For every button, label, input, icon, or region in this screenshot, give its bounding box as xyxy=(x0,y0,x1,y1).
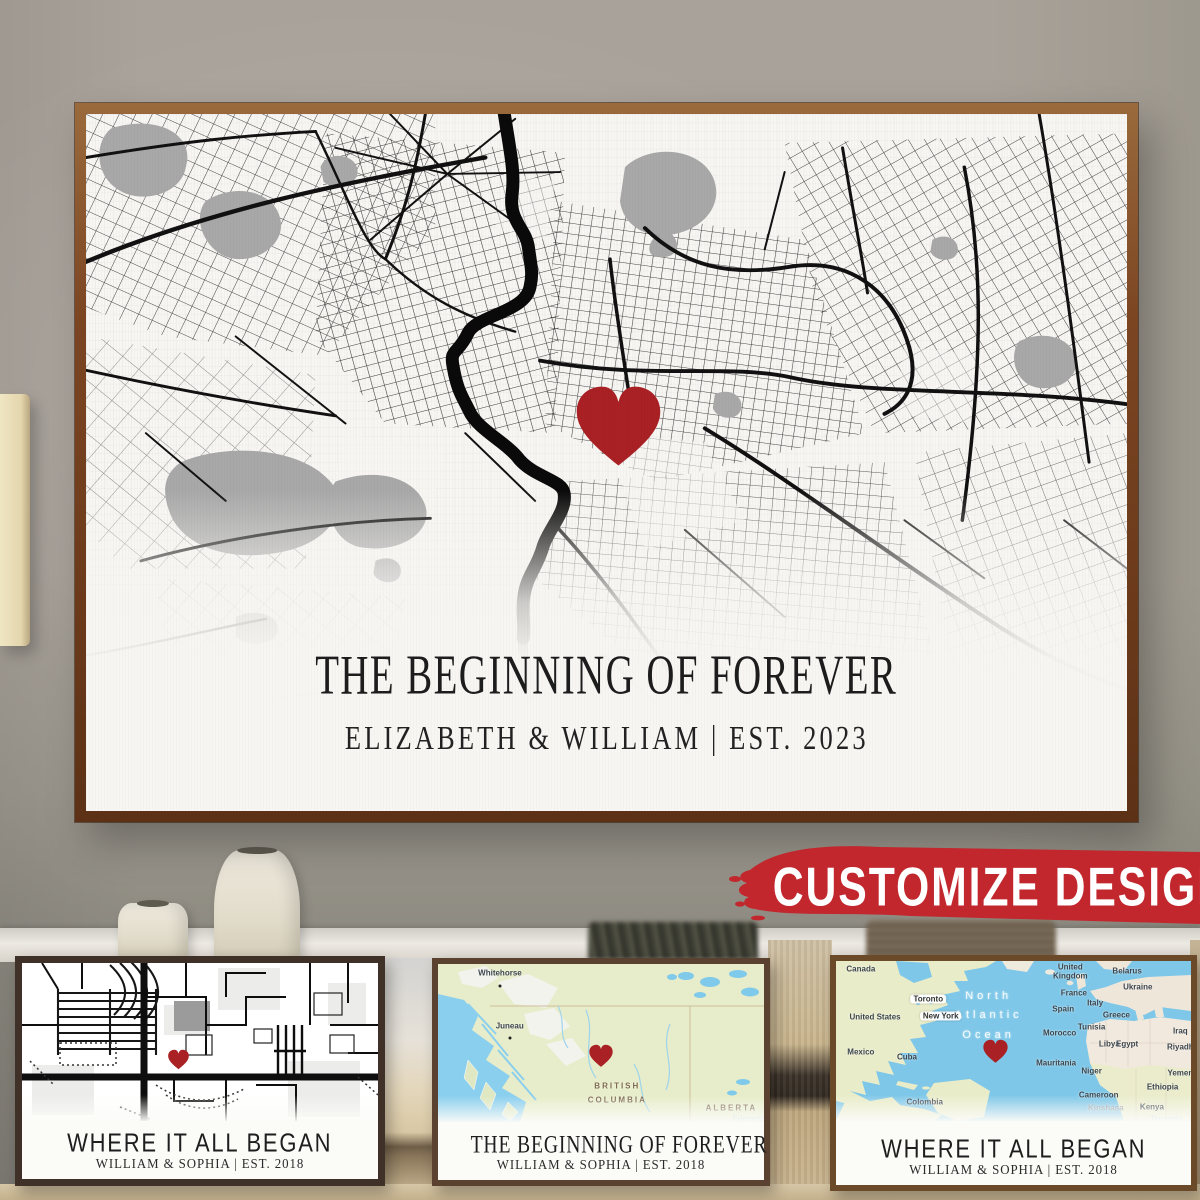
vase-prop xyxy=(118,903,188,959)
map-label-country: Niger xyxy=(1081,1067,1101,1076)
map-label-country: Mauritania xyxy=(1036,1059,1076,1068)
map-label-country: Mexico xyxy=(847,1048,874,1057)
map-label-country: United Kingdom xyxy=(1047,964,1093,981)
map-label-country: Tunisia xyxy=(1078,1022,1105,1031)
variant-subtitle: WILLIAM & SOPHIA | EST. 2018 xyxy=(36,1157,364,1173)
customize-design-label: CUSTOMIZE DESIGN xyxy=(773,855,1182,918)
variant-caption: WHERE IT ALL BEGAN WILLIAM & SOPHIA | ES… xyxy=(22,1129,378,1179)
map-label-country: Ethiopia xyxy=(1147,1083,1179,1092)
ocean-label: North xyxy=(965,990,1012,1002)
vase-mouth xyxy=(137,900,169,907)
map-label-country: Ukraine xyxy=(1123,982,1152,991)
map-label-country: Yemen xyxy=(1167,1069,1191,1078)
map-label-country: Morocco xyxy=(1043,1029,1076,1038)
shelf-gap xyxy=(768,940,832,1200)
variant-caption: WHERE IT ALL BEGAN WILLIAM & SOPHIA | ES… xyxy=(836,1135,1191,1185)
map-label-country: Italy xyxy=(1087,998,1103,1007)
map-fade xyxy=(836,1095,1191,1121)
variant-subtitle: WILLIAM & SOPHIA | EST. 2018 xyxy=(451,1158,751,1174)
map-city-pill: Toronto xyxy=(910,995,946,1004)
product-photo-scene: THE BEGINNING OF FOREVER ELIZABETH & WIL… xyxy=(0,0,1200,1200)
variant-thumb-region-map[interactable]: Whitehorse Juneau BRITISH COLUMBIA ALBER… xyxy=(432,958,770,1186)
map-label-region: BRITISH xyxy=(594,1081,640,1090)
map-label-country: Belarus xyxy=(1112,966,1141,975)
variant-world-map: North Atlantic Ocean Canada United State… xyxy=(836,961,1191,1121)
map-fade xyxy=(22,1095,378,1121)
variant-caption: THE BEGINNING OF FOREVER WILLIAM & SOPHI… xyxy=(438,1132,764,1180)
ocean-label: Ocean xyxy=(962,1029,1014,1041)
map-label-country: Iraq xyxy=(1173,1027,1188,1036)
variant-region-map: Whitehorse Juneau BRITISH COLUMBIA ALBER… xyxy=(438,964,764,1122)
variant-thumb-street-map[interactable]: WHERE IT ALL BEGAN WILLIAM & SOPHIA | ES… xyxy=(15,956,385,1186)
vase-prop xyxy=(214,850,300,960)
ocean-label: Atlantic xyxy=(955,1009,1023,1021)
vase-mouth xyxy=(237,847,277,854)
main-poster-print: THE BEGINNING OF FOREVER ELIZABETH & WIL… xyxy=(86,114,1127,811)
poster-title: THE BEGINNING OF FOREVER xyxy=(315,642,897,706)
map-label-country: Egypt xyxy=(1116,1040,1138,1049)
variant-subtitle: WILLIAM & SOPHIA | EST. 2018 xyxy=(850,1163,1177,1179)
variant-title: WHERE IT ALL BEGAN xyxy=(67,1128,332,1158)
map-label-country: Greece xyxy=(1103,1011,1130,1020)
map-label-city: Juneau xyxy=(496,1021,524,1030)
map-label-country: Canada xyxy=(846,965,875,974)
main-poster-frame: THE BEGINNING OF FOREVER ELIZABETH & WIL… xyxy=(75,103,1138,822)
map-label-country: Spain xyxy=(1052,1005,1074,1014)
map-label-country: Cuba xyxy=(897,1053,917,1062)
map-fade xyxy=(438,1096,764,1122)
map-label-country: United States xyxy=(849,1013,900,1022)
city-dot xyxy=(498,985,501,988)
map-label-country: Riyadh xyxy=(1167,1043,1191,1052)
variant-thumb-world-map[interactable]: North Atlantic Ocean Canada United State… xyxy=(830,955,1197,1191)
customize-design-badge[interactable]: CUSTOMIZE DESIGN xyxy=(728,842,1200,934)
city-dot xyxy=(508,1037,511,1040)
map-city-pill: New York xyxy=(920,1012,962,1021)
cabinet-prop xyxy=(0,394,30,646)
poster-subtitle: ELIZABETH & WILLIAM | EST. 2023 xyxy=(345,720,869,758)
variant-street-map xyxy=(22,963,378,1121)
variant-title: THE BEGINNING OF FOREVER xyxy=(471,1131,768,1159)
map-label-city: Whitehorse xyxy=(478,969,522,978)
map-label-country: France xyxy=(1061,989,1087,998)
shelf-gap xyxy=(383,958,433,1200)
variant-title: WHERE IT ALL BEGAN xyxy=(881,1134,1146,1164)
